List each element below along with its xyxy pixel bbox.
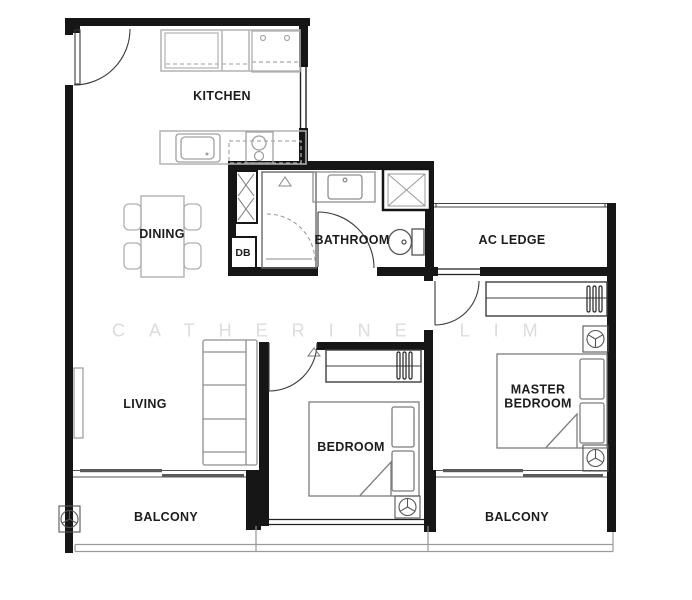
entrance-door-swing xyxy=(74,29,130,85)
db-box-label: DB xyxy=(235,247,250,259)
watermark-text: CATHERINE LIM xyxy=(112,321,562,342)
bay-window-outline xyxy=(256,526,428,544)
room-label-balcony-right: BALCONY xyxy=(485,510,549,524)
master-north-window xyxy=(438,269,480,275)
utility-cabinet-x xyxy=(236,171,257,223)
sofa xyxy=(203,340,257,465)
cooker-unit xyxy=(252,31,300,72)
room-label-ac-ledge: AC LEDGE xyxy=(479,233,546,247)
kitchen-sink xyxy=(176,134,220,162)
vanity-basin xyxy=(313,172,375,202)
floorplan: KITCHEN DINING BATHROOM AC LEDGE LIVING … xyxy=(0,0,692,600)
walls xyxy=(65,18,616,553)
floorplan-drawing xyxy=(0,0,692,600)
room-label-bedroom: BEDROOM xyxy=(317,440,384,454)
room-label-kitchen: KITCHEN xyxy=(193,89,251,103)
toilet-wc xyxy=(389,229,425,255)
kitchen-counter-bottom xyxy=(160,131,306,164)
bedroom-door-swing xyxy=(269,343,317,391)
room-label-master-bedroom: MASTER BEDROOM xyxy=(502,383,574,412)
living-balcony-sliding-door xyxy=(73,469,246,477)
bedroom-wardrobe xyxy=(308,348,421,382)
cooktop-hob xyxy=(229,132,301,163)
kitchen-window xyxy=(301,67,307,128)
master-bedroom-door-swing xyxy=(435,281,479,325)
bedroom-fan-light-icon xyxy=(395,496,420,518)
balcony-railing xyxy=(75,530,613,552)
room-label-balcony-left: BALCONY xyxy=(134,510,198,524)
master-nightstand-bottom xyxy=(583,445,608,471)
fridge-unit xyxy=(165,33,247,68)
shower-stall xyxy=(383,169,430,210)
tv-console xyxy=(74,368,83,438)
master-balcony-sliding-door xyxy=(436,469,607,477)
kitchen-counter-top xyxy=(161,30,300,71)
closet xyxy=(262,172,316,268)
ac-ledge-edge-line xyxy=(434,204,607,208)
master-nightstand-top xyxy=(583,326,608,352)
bedroom-window xyxy=(269,520,424,525)
master-wardrobe xyxy=(486,282,607,316)
room-label-living: LIVING xyxy=(123,397,166,411)
room-label-dining: DINING xyxy=(139,227,185,241)
room-label-bathroom: BATHROOM xyxy=(314,233,389,247)
